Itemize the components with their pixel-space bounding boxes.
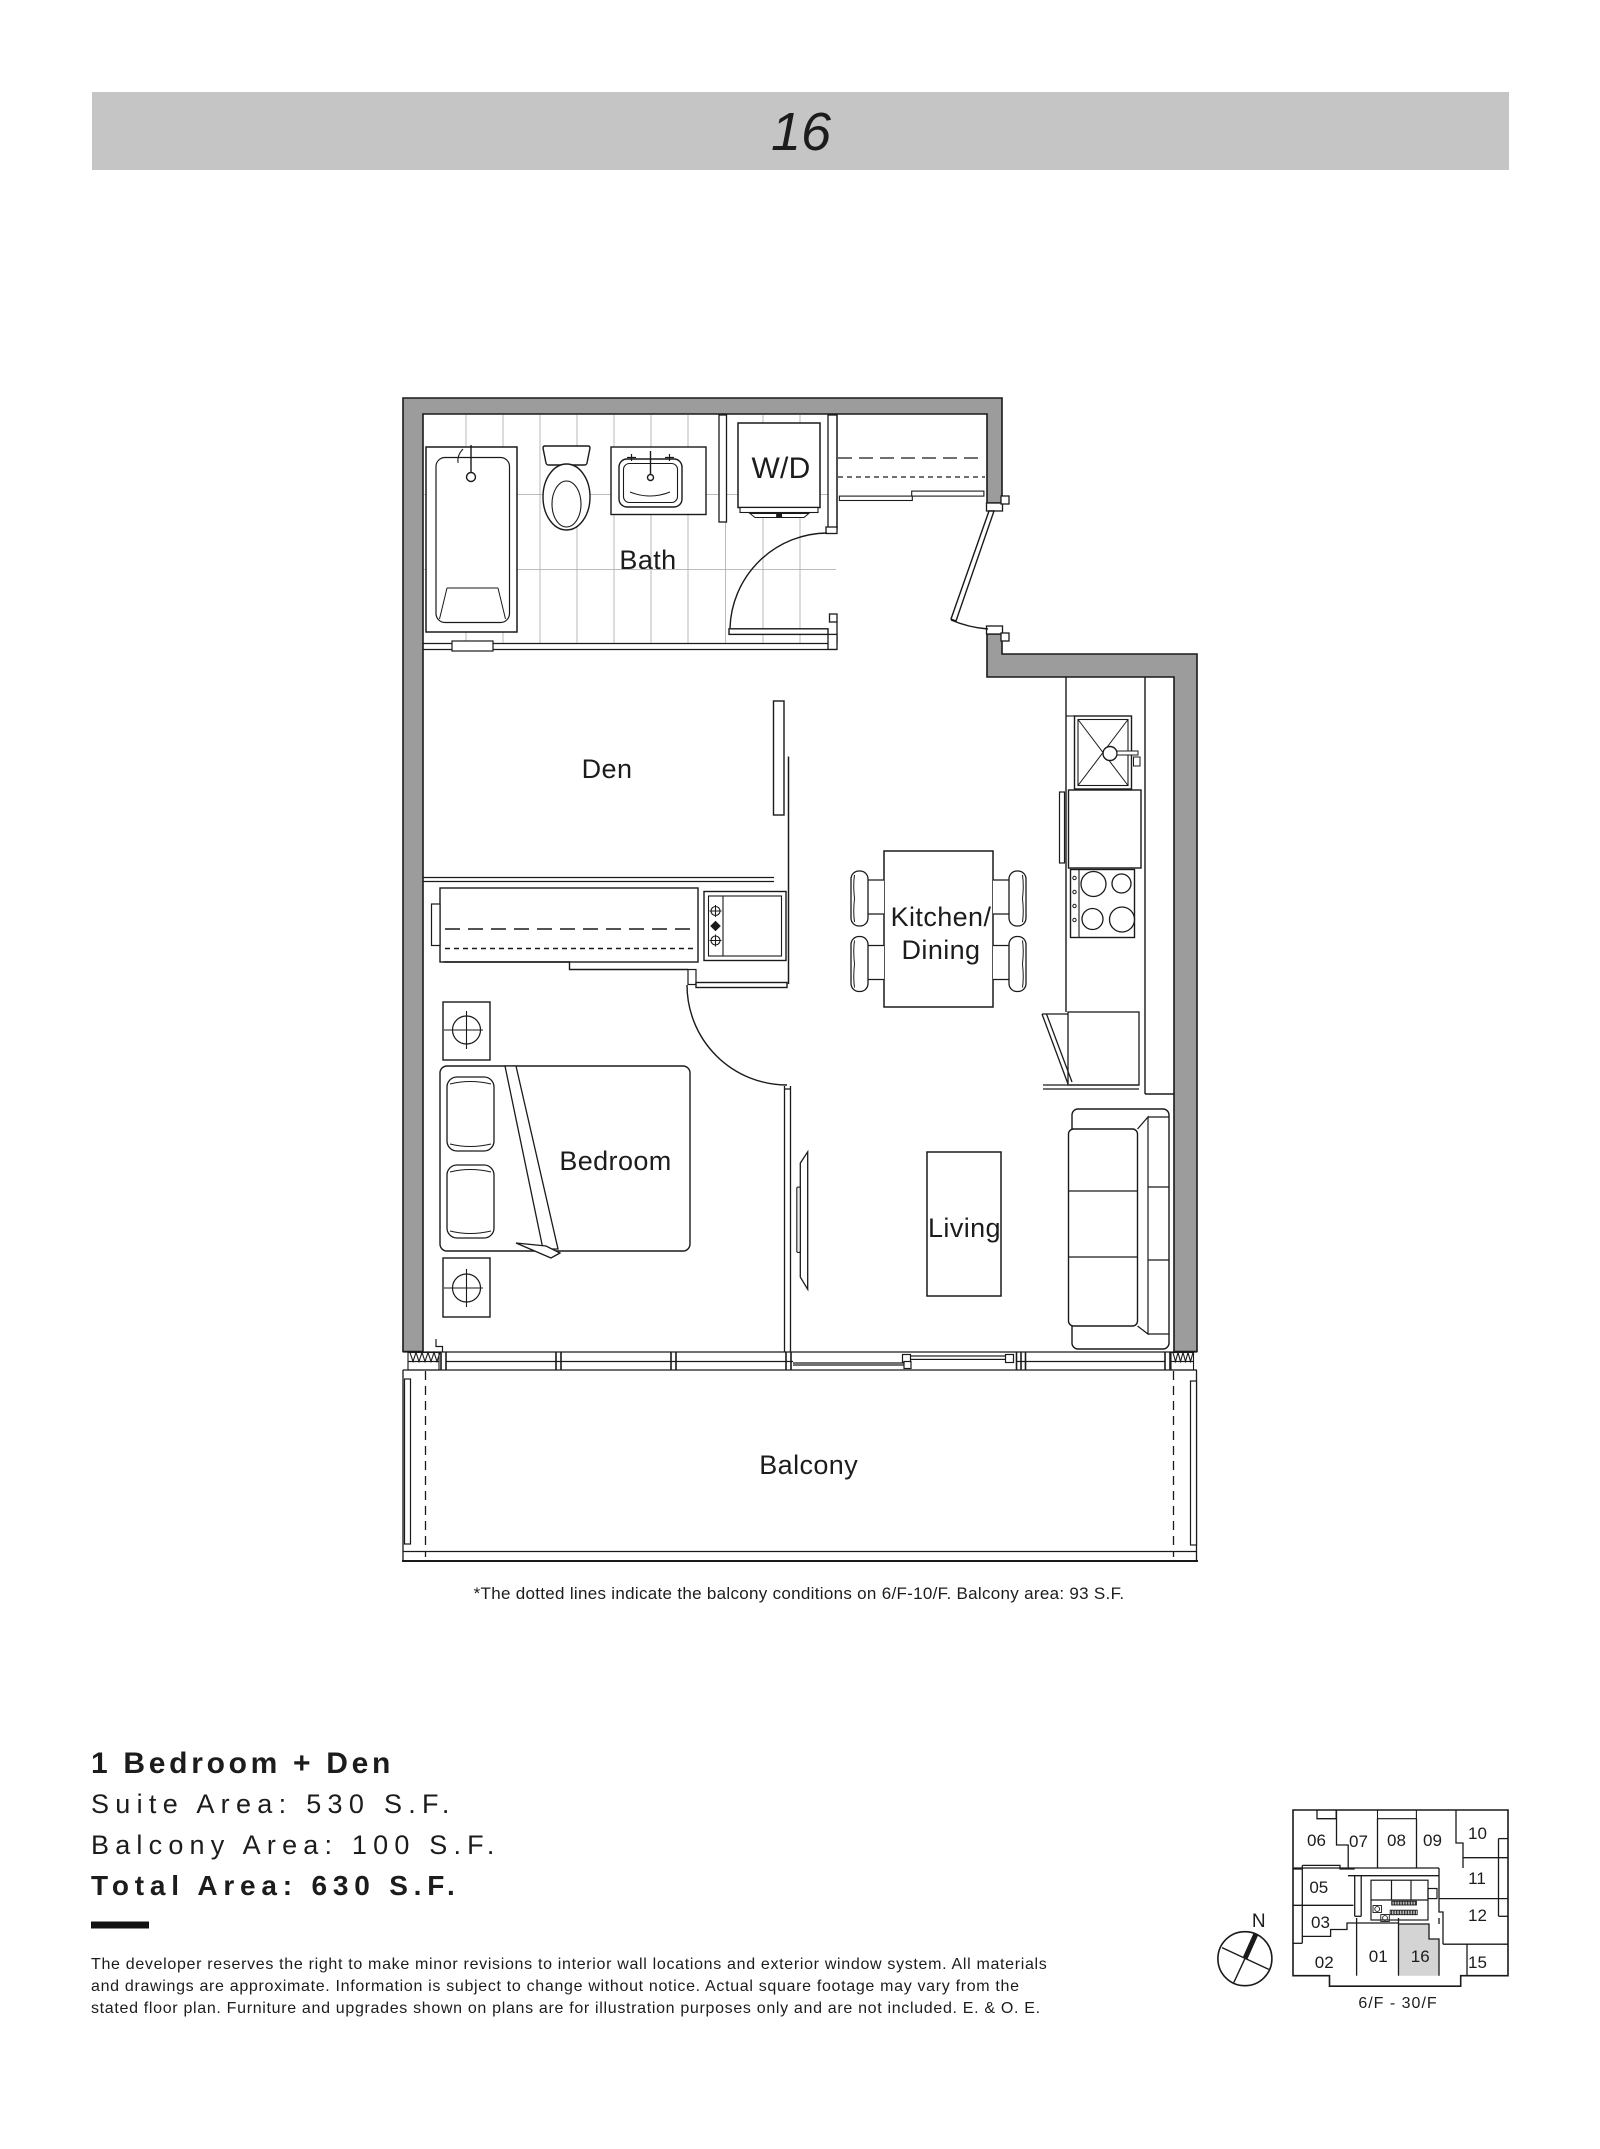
svg-text:*The dotted lines indicate the: *The dotted lines indicate the balcony c… — [474, 1584, 1125, 1603]
svg-text:6/F - 30/F: 6/F - 30/F — [1358, 1995, 1437, 2012]
svg-text:stated floor plan. Furniture a: stated floor plan. Furniture and upgrade… — [91, 2000, 1041, 2017]
svg-text:03: 03 — [1311, 1913, 1330, 1932]
svg-text:08: 08 — [1387, 1831, 1406, 1850]
svg-text:12: 12 — [1468, 1906, 1487, 1925]
svg-text:Balcony: Balcony — [759, 1450, 858, 1480]
svg-text:05: 05 — [1309, 1878, 1328, 1897]
svg-text:Suite Area: 530 S.F.: Suite Area: 530 S.F. — [91, 1789, 456, 1819]
svg-text:Balcony Area: 100 S.F.: Balcony Area: 100 S.F. — [91, 1830, 501, 1860]
svg-text:06: 06 — [1307, 1831, 1326, 1850]
svg-text:Kitchen/: Kitchen/ — [891, 902, 992, 932]
svg-text:02: 02 — [1315, 1953, 1334, 1972]
svg-text:Den: Den — [582, 754, 633, 784]
svg-text:07: 07 — [1349, 1832, 1368, 1851]
svg-text:15: 15 — [1468, 1953, 1487, 1972]
svg-text:16: 16 — [1411, 1947, 1430, 1966]
svg-text:16: 16 — [771, 102, 832, 162]
svg-text:Total Area: 630 S.F.: Total Area: 630 S.F. — [91, 1870, 461, 1901]
svg-text:Bedroom: Bedroom — [559, 1146, 671, 1176]
svg-text:and drawings are approximate.: and drawings are approximate. Informatio… — [91, 1978, 1020, 1995]
svg-text:09: 09 — [1423, 1831, 1442, 1850]
svg-text:Living: Living — [928, 1213, 1001, 1243]
svg-text:01: 01 — [1369, 1947, 1388, 1966]
svg-text:The developer reserves the rig: The developer reserves the right to make… — [91, 1956, 1047, 1973]
svg-text:Dining: Dining — [902, 935, 981, 965]
svg-text:11: 11 — [1468, 1869, 1486, 1888]
svg-text:10: 10 — [1468, 1824, 1487, 1843]
svg-text:Bath: Bath — [619, 545, 676, 575]
svg-text:N: N — [1252, 1911, 1266, 1932]
svg-text:W/D: W/D — [752, 452, 811, 485]
svg-text:1 Bedroom + Den: 1 Bedroom + Den — [91, 1747, 394, 1780]
